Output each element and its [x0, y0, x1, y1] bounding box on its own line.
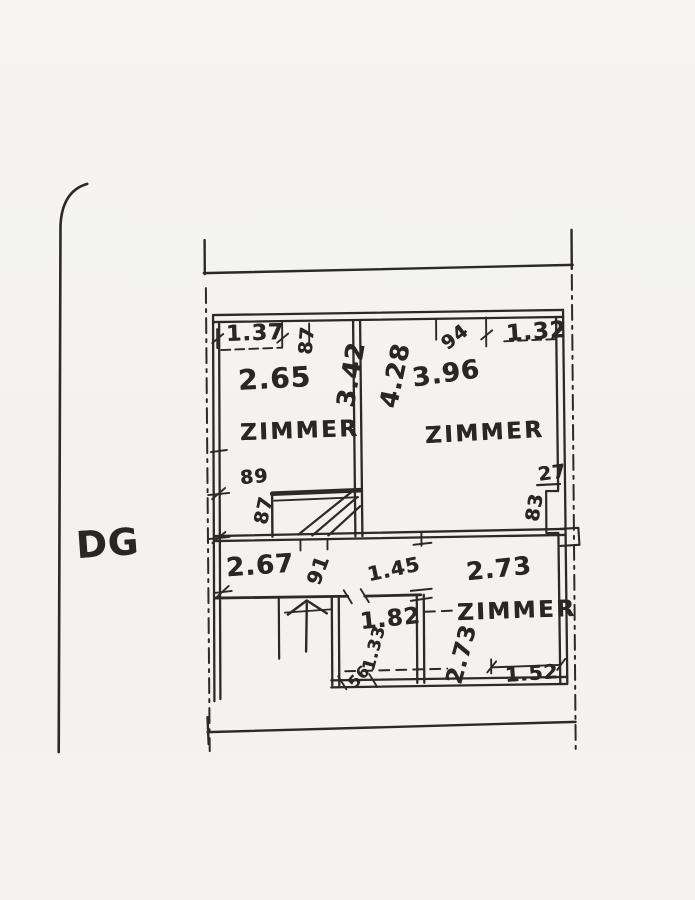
dim-left-wall-upper: 89	[239, 467, 269, 488]
section-line-right	[572, 275, 576, 751]
roof-edge-line-bottom	[208, 715, 576, 744]
section-line-left	[206, 288, 210, 751]
scanned-floor-plan-page: DG ZIMMER 2.65 3.42 ZIMMER 3.96 4.28 1.3…	[0, 0, 695, 900]
dim-top-window-right: 1.32	[505, 319, 567, 346]
outer-boundary-line	[55, 184, 90, 752]
dim-room3-width: 2.73	[465, 553, 533, 585]
dim-hallway-length: 2.67	[225, 551, 295, 582]
dim-top-door-left: 87	[297, 325, 318, 355]
dim-duct-width: 27	[537, 462, 568, 485]
roof-edge-line-top	[204, 230, 573, 274]
stair-direction-arrow	[285, 600, 331, 651]
right-wall-stub	[560, 528, 579, 546]
room-label-top-right: ZIMMER	[424, 419, 544, 448]
dim-duct-height: 83	[523, 492, 547, 523]
floor-label: DG	[75, 523, 141, 564]
dim-room1-width: 2.65	[237, 363, 311, 395]
dim-top-window-left: 1.37	[226, 322, 285, 346]
dim-bottom-window-right: 1.52	[504, 661, 559, 685]
room-label-bottom-right: ZIMMER	[457, 598, 577, 625]
floorplan-drawing	[0, 0, 695, 900]
room-label-top-left: ZIMMER	[240, 418, 360, 445]
